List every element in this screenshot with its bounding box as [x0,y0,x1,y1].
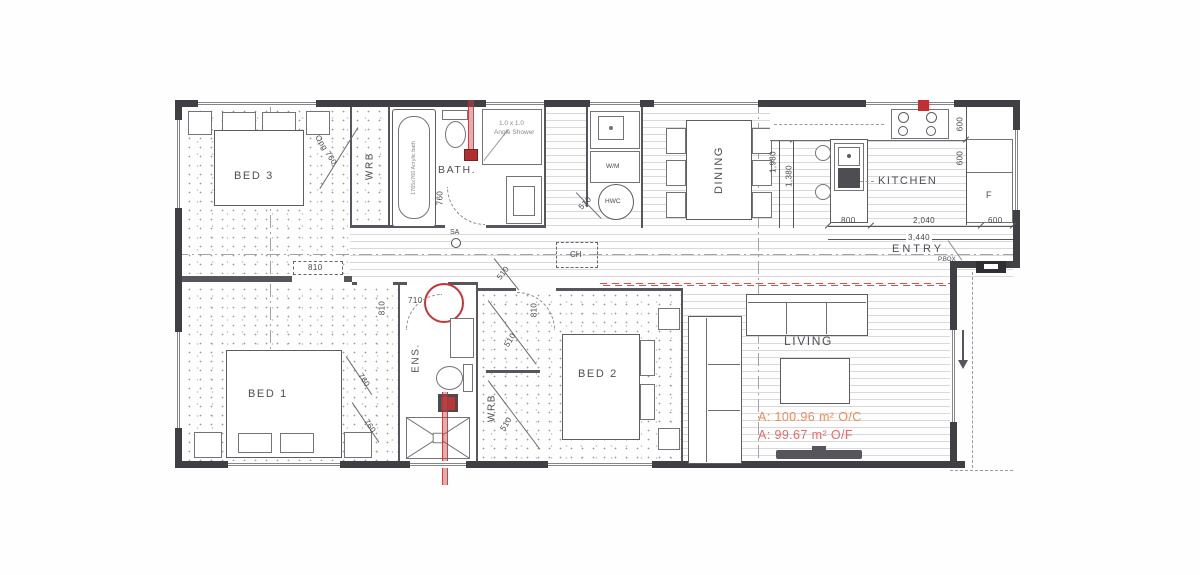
wall-laundry-east [641,107,643,228]
tv-unit [776,450,862,459]
dim-line-kitchen-right [966,107,967,225]
wall-ens-west [398,282,400,461]
entry-path-arrow-head [958,360,968,369]
window-ens-south [410,461,466,468]
wall-bed2-north-a [478,288,516,291]
wall-bed2-north-b [556,288,683,291]
dining-label: DINING [713,146,725,194]
dim-kitchen-top-b: 600 [956,151,965,166]
bed3-bed [214,130,304,206]
dim-kitchen-top-a: 600 [956,117,965,132]
ens-cabinet [450,318,474,358]
bath-toilet-bowl [445,121,466,148]
wall-bed1-north-a [352,282,357,285]
bath-vanity-basin [513,186,535,216]
kitchen-tall-cabinet [966,139,1013,223]
bed1-side-table [194,432,222,458]
bar-stool [815,145,831,161]
bed2-pillow [640,340,655,376]
window-kitchen-east [1013,130,1020,210]
window-laundry-north [590,100,640,107]
bar-stool [815,184,831,200]
window-bed1-south [228,461,340,468]
bath-toilet-cistern [442,110,468,120]
ens-shower [406,417,470,459]
dim-kitchen-row-total: 3,440 [906,233,932,242]
dining-chair [752,192,772,218]
bed3-pillow [222,112,256,131]
ens-toilet-bowl [436,366,463,390]
ens-toilet-cistern [463,364,473,392]
wall-wrb-bath [388,107,390,225]
island-sink-bowls [838,168,860,188]
dim-kitchen-row-a: 800 [841,216,856,225]
bed3-side-table [188,111,212,135]
wall-bed3-south-a [182,276,292,282]
bed1-label: BED 1 [248,388,288,400]
bed3-pillow [262,112,296,131]
dim-bed1-door: 810 [378,301,387,316]
cooktop-burner [926,126,936,136]
bed3-label: BED 3 [234,170,274,182]
red-basin-marker [464,149,478,161]
island-sink-faucet [847,154,851,158]
ens-label: ENS. [411,343,422,373]
cooktop-burner [926,112,937,123]
window-bed3-west [175,120,182,208]
entry-label: ENTRY [892,243,944,255]
wall-bed2-living [681,288,683,461]
dim-dining-lower: 1,380 [785,165,794,187]
wall-bath-east [544,107,546,228]
bath-label: BATH. [438,164,476,176]
living-sofa-left-cushion [708,410,740,411]
living-sofa-left [688,316,742,464]
wrb1-label: WRB [365,152,376,180]
ens-shower-x [407,418,469,458]
window-shower-north [486,100,544,107]
red-dashed-beam [600,283,950,286]
power-box-label: P.BOX [938,257,956,263]
coffee-table [780,358,850,404]
bed2-side-table [658,428,680,450]
wall-bed3-wrb [350,107,352,225]
dining-chair [666,160,686,186]
bed2-pillow [640,384,655,420]
smoke-alarm-icon [451,238,461,248]
living-label: LIVING [784,334,833,348]
kitchen-label: KITCHEN [878,175,937,187]
dim-line-kitchen-row [828,226,1013,227]
angle-shower [482,109,542,165]
living-sofa-left-back [706,318,707,462]
dim-kitchen-row-c: 600 [988,216,1003,225]
ceiling-hatch-label: CH [570,250,582,259]
porch-dashed-line [972,272,973,468]
angle-shower-label-1: 1.0 x 1.0 [499,120,524,127]
window-kitchen-north [866,100,954,107]
dim-kitchen-row-b: 2,040 [913,216,935,225]
dining-chair [666,192,686,218]
laundry-tub-drain [609,126,613,130]
bed2-label: BED 2 [578,368,618,380]
bed2-side-table [658,308,680,330]
window-living-east [950,330,957,422]
living-sofa-top-back [748,302,866,303]
window-bed2-south [548,461,652,468]
bed1-pillow [280,433,314,453]
area-over-framing: A: 99.67 m² O/F [758,428,853,442]
smoke-alarm-label: SA [450,229,459,236]
entry-path-arrow-shaft [962,330,964,362]
bed3-side-table [306,111,330,135]
floor-plan: 810 BED 3 Opg 760 WRB 1765x760 Acrylic b… [0,0,1200,575]
dim-dining-total: 1,980 [769,151,778,173]
wall-wrb2-divider [486,370,540,373]
bed1-side-table [344,432,372,458]
meter-box-slot [984,264,998,269]
wall-laundry-west [586,107,588,207]
window-bed1-west [175,332,182,428]
wall-ens-east [476,282,478,461]
window-dining-north [654,100,758,107]
cooktop-burner [898,126,908,136]
window-bed3-north [198,100,316,107]
kitchen-cabinet-divider [966,172,1013,173]
wall-bed3-south-b [344,276,352,282]
bath-tub-label: 1765x760 Acrylic bath [411,141,417,195]
living-sofa-top [746,294,868,336]
living-sofa-top-cushion [786,303,787,334]
kitchen-label-leader [860,181,874,182]
area-over-cladding: A: 100.96 m² O/C [758,410,862,424]
washing-machine-label: W/M [606,163,619,170]
angle-shower-label-2: Angle Shower [494,129,534,136]
living-sofa-left-cushion [708,364,740,365]
fridge-label: F [986,190,992,200]
bed2-bed [562,334,640,440]
cooktop-burner [898,112,909,123]
wall-bath-south-b [486,225,546,228]
porch-dashed-line-bottom [950,470,1013,471]
living-sofa-top-cushion [826,303,827,334]
dining-chair [666,128,686,154]
red-highlight-ens [442,392,448,485]
hot-water-cylinder-label: HWC [605,198,621,205]
wrb2-label: WRB [487,394,498,422]
tv-unit-stand [812,446,826,450]
red-wall-marker [918,100,929,111]
kitchen-bench-dashed-edge [774,124,884,125]
dim-bath-door: 760 [436,191,445,206]
dim-bed3-opening: 810 [308,263,323,272]
bed1-pillow [238,433,272,453]
